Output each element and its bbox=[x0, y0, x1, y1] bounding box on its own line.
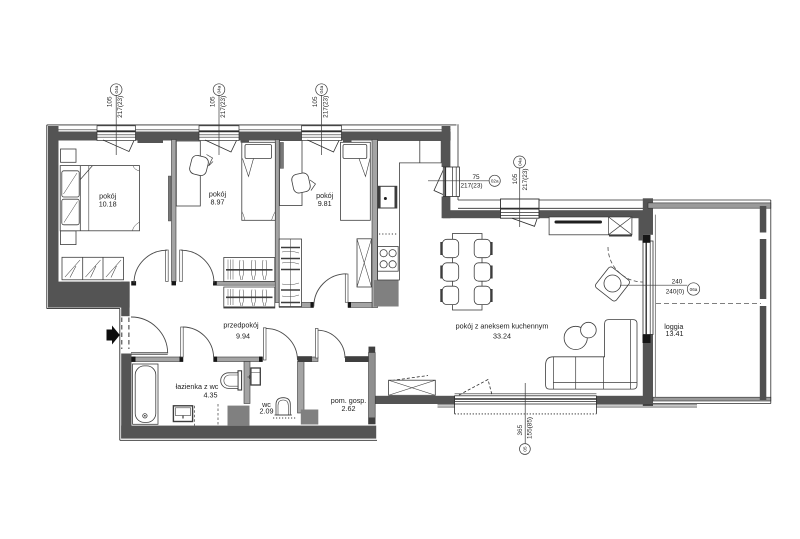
svg-text:240: 240 bbox=[672, 279, 683, 286]
svg-text:217(23): 217(23) bbox=[117, 96, 124, 118]
svg-text:przedpokój: przedpokój bbox=[223, 321, 259, 330]
svg-text:04a: 04a bbox=[114, 85, 119, 93]
svg-text:105: 105 bbox=[209, 96, 216, 107]
svg-text:105: 105 bbox=[107, 96, 114, 107]
svg-text:240(0): 240(0) bbox=[666, 288, 684, 295]
svg-text:10.18: 10.18 bbox=[99, 200, 117, 209]
svg-text:06a: 06a bbox=[690, 287, 698, 292]
svg-text:365: 365 bbox=[517, 424, 524, 435]
svg-text:9.81: 9.81 bbox=[318, 199, 332, 208]
svg-text:217(23): 217(23) bbox=[220, 96, 227, 118]
svg-text:217(23): 217(23) bbox=[460, 183, 482, 190]
svg-text:75: 75 bbox=[472, 174, 480, 181]
svg-text:2.62: 2.62 bbox=[342, 404, 356, 413]
svg-text:04a: 04a bbox=[517, 158, 522, 166]
svg-text:pokój z aneksem kuchennym: pokój z aneksem kuchennym bbox=[456, 321, 549, 330]
svg-text:105: 105 bbox=[512, 173, 519, 184]
svg-text:217(23): 217(23) bbox=[323, 96, 330, 118]
svg-text:217(23): 217(23) bbox=[522, 168, 529, 190]
svg-text:105: 105 bbox=[312, 96, 319, 107]
svg-text:04a: 04a bbox=[319, 85, 324, 93]
svg-text:02a: 02a bbox=[491, 179, 499, 184]
svg-text:155(85): 155(85) bbox=[527, 417, 534, 439]
svg-text:4.35: 4.35 bbox=[204, 391, 218, 400]
svg-text:05: 05 bbox=[523, 446, 528, 452]
svg-text:9.94: 9.94 bbox=[236, 331, 250, 340]
svg-text:04a: 04a bbox=[217, 85, 222, 93]
svg-text:2.09: 2.09 bbox=[260, 406, 274, 415]
svg-text:8.97: 8.97 bbox=[211, 197, 225, 206]
svg-text:33.24: 33.24 bbox=[493, 332, 511, 341]
svg-text:13.41: 13.41 bbox=[666, 329, 684, 338]
